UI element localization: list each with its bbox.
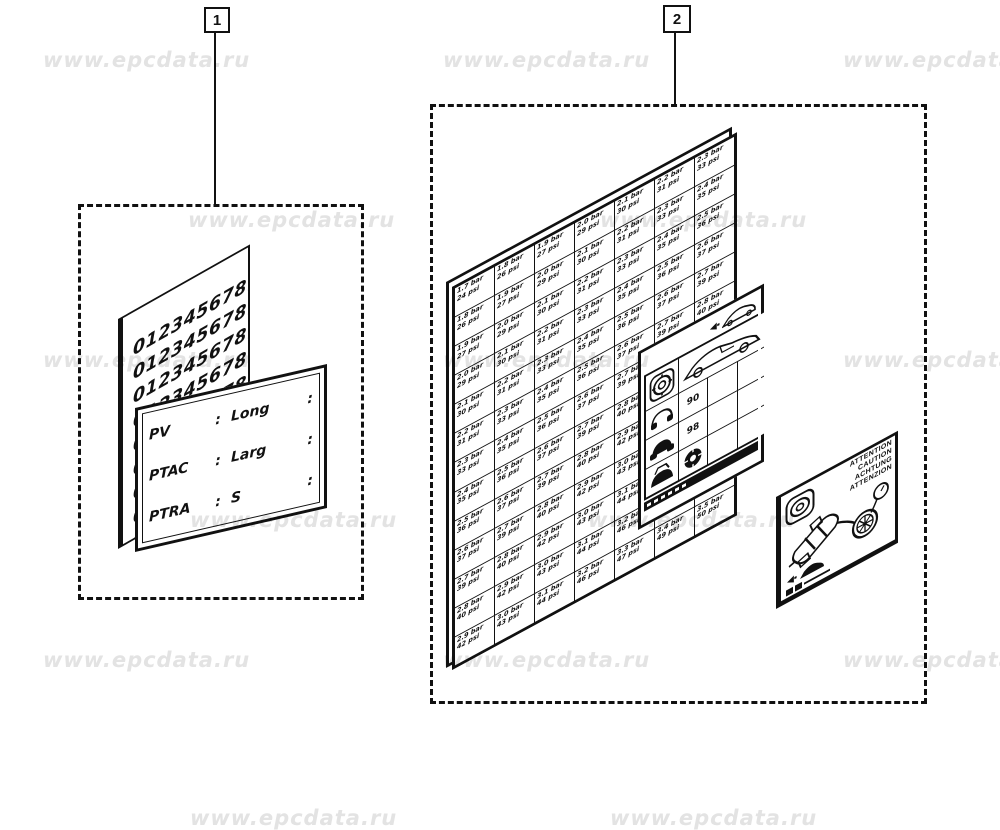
spec-value: Long bbox=[231, 395, 289, 424]
spec-label: PV bbox=[149, 415, 205, 444]
spec-label: PTRA bbox=[149, 497, 205, 526]
watermark-text: www.epcdata.ru bbox=[43, 648, 250, 672]
watermark-text: www.epcdata.ru bbox=[188, 208, 395, 232]
watermark-text: www.epcdata.ru bbox=[843, 48, 1000, 72]
watermark-text: www.epcdata.ru bbox=[610, 806, 817, 830]
watermark-text: www.epcdata.ru bbox=[843, 648, 1000, 672]
spec-row: PTAC:Larg: bbox=[149, 431, 313, 485]
spec-label: PTAC bbox=[149, 456, 205, 485]
callout-2-label: 2 bbox=[673, 11, 681, 28]
callout-1-label: 1 bbox=[213, 12, 221, 29]
spec-value: S bbox=[231, 478, 289, 507]
spec-row: PTRA:S: bbox=[149, 473, 313, 527]
spec-separator: : bbox=[289, 390, 313, 411]
spec-separator: : bbox=[205, 450, 231, 472]
watermark-text: www.epcdata.ru bbox=[843, 348, 1000, 372]
watermark-text: www.epcdata.ru bbox=[443, 48, 650, 72]
callout-2[interactable]: 2 bbox=[663, 5, 691, 33]
caution-label: ATTENTIONCAUTIONACHTUNGATTENZION bbox=[776, 431, 898, 609]
watermark-text: www.epcdata.ru bbox=[43, 48, 250, 72]
callout-2-line bbox=[674, 29, 676, 105]
arrow-left-icon: ◀▪ bbox=[710, 319, 720, 333]
spec-value: Larg bbox=[231, 437, 289, 466]
spare-wheel-icon bbox=[683, 442, 703, 475]
spec-separator: : bbox=[205, 409, 231, 431]
spec-separator: : bbox=[289, 431, 313, 452]
watermark-text: www.epcdata.ru bbox=[190, 806, 397, 830]
sealant-compressor-icon bbox=[787, 472, 891, 582]
spec-separator: : bbox=[205, 491, 231, 513]
spec-separator: : bbox=[289, 473, 313, 494]
callout-1-line bbox=[214, 29, 216, 205]
callout-1[interactable]: 1 bbox=[204, 7, 230, 33]
